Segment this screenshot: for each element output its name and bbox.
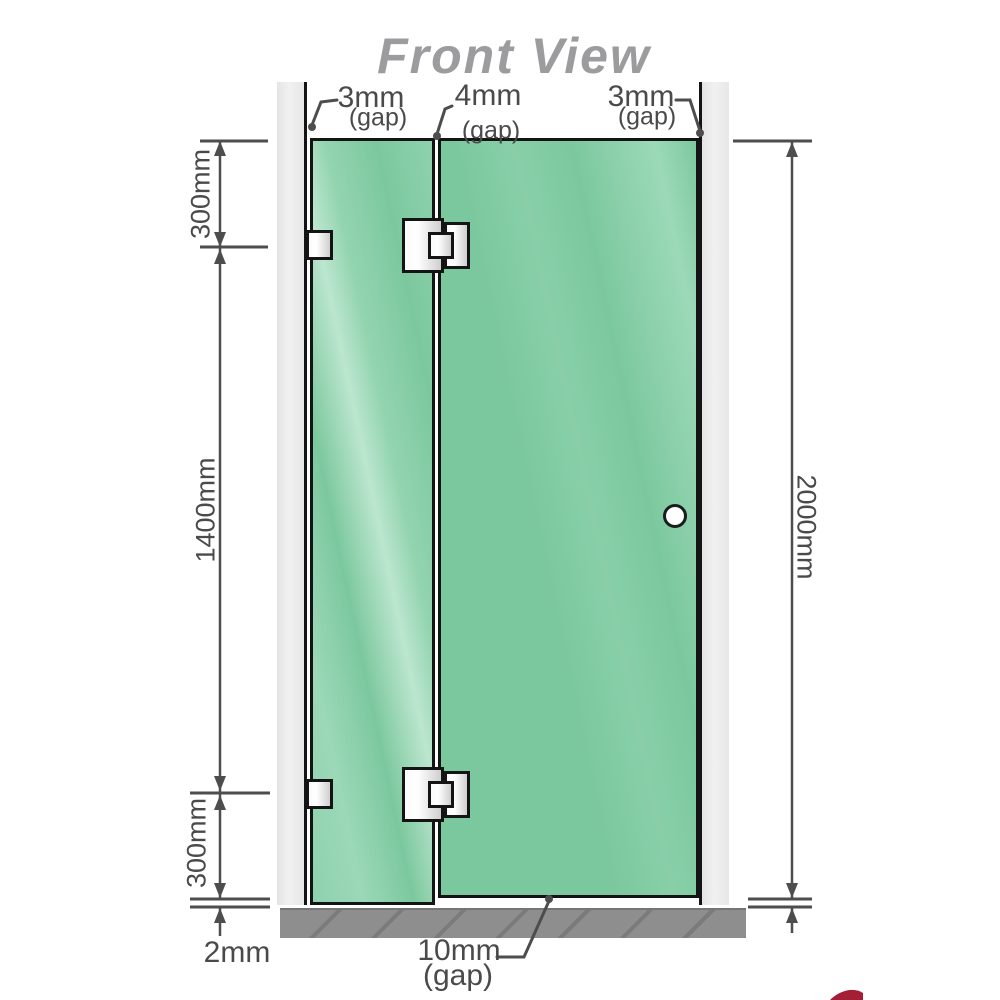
logo-red-mark-icon [830, 990, 863, 1000]
page-title: Front View [377, 31, 651, 81]
left-wall-channel [277, 82, 307, 905]
glass-door-panel [438, 138, 699, 898]
gap-label-top-right-note: (gap) [618, 105, 676, 130]
gap-label-top-middle-note: (gap) [462, 119, 520, 144]
dimension-2000mm: 2000mm [793, 474, 820, 579]
door-knob-icon [663, 504, 687, 528]
top-hinge-knuckle-icon [428, 232, 454, 259]
dimension-300mm-bottom: 300mm [184, 798, 211, 888]
wall-bracket-bottom-icon [306, 779, 333, 809]
front-view-diagram: Front View 3mm (gap) 4mm (gap) 3mm (gap)… [0, 0, 1000, 1000]
wall-bracket-top-icon [306, 230, 333, 260]
dimension-300mm-top: 300mm [188, 149, 215, 239]
gap-label-floor-value: 2mm [204, 938, 271, 968]
dimension-1400mm: 1400mm [193, 457, 220, 562]
bottom-hinge-knuckle-icon [428, 781, 454, 808]
gap-label-top-middle-value: 4mm [455, 81, 522, 111]
right-wall-channel [699, 82, 729, 905]
floor-base [280, 908, 746, 938]
gap-label-top-left-note: (gap) [349, 106, 407, 131]
gap-label-bottom-note: (gap) [423, 961, 493, 991]
